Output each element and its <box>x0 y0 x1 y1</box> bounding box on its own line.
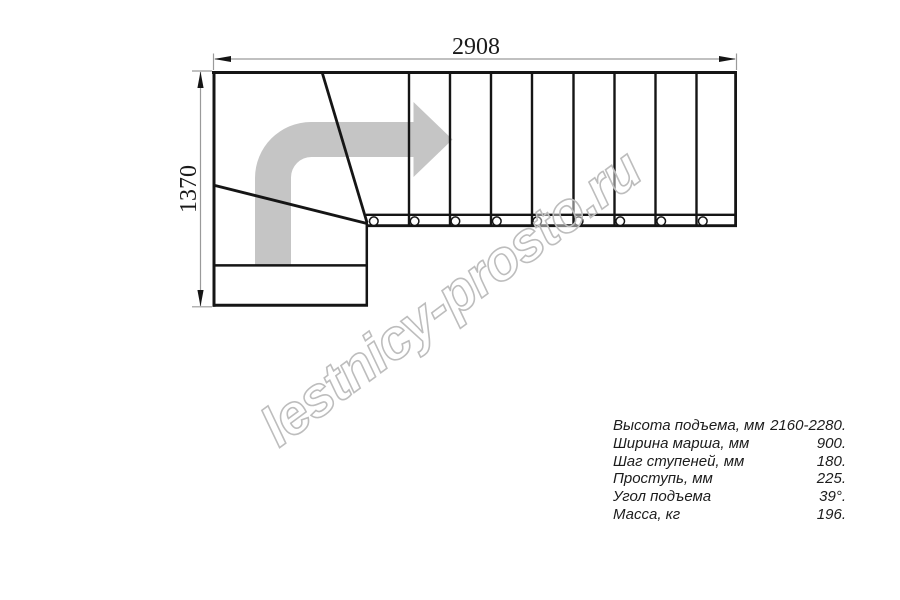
spec-row-rise-height: Высота подъема, мм 2160-2280. <box>613 417 846 435</box>
width-dimension: 2908 <box>214 34 737 70</box>
spec-row-flight-width: Ширина марша, мм 900. <box>613 435 846 453</box>
dimension-arrow-left-icon <box>214 56 231 62</box>
dimension-arrow-top-icon <box>197 72 203 89</box>
spec-label: Высота подъема, мм <box>613 417 765 435</box>
spec-label: Масса, кг <box>613 506 680 524</box>
stair-plan-page: 2908 1370 lestnicy-prosto.ru Высота подъ… <box>0 0 900 600</box>
spec-value: 39°. <box>819 488 846 506</box>
spec-table: Высота подъема, мм 2160-2280. Ширина мар… <box>613 417 846 524</box>
spec-value: 900. <box>817 435 846 453</box>
spec-value: 2160-2280. <box>770 417 846 435</box>
spec-row-mass: Масса, кг 196. <box>613 506 846 524</box>
spec-label: Ширина марша, мм <box>613 435 749 453</box>
spec-value: 225. <box>817 470 846 488</box>
spec-label: Шаг ступеней, мм <box>613 453 744 471</box>
spec-row-step-pitch: Шаг ступеней, мм 180. <box>613 453 846 471</box>
spec-value: 180. <box>817 453 846 471</box>
spec-value: 196. <box>817 506 846 524</box>
dimension-arrow-right-icon <box>719 56 736 62</box>
height-dimension: 1370 <box>176 71 212 307</box>
spec-label: Угол подъема <box>613 488 711 506</box>
direction-arrow-icon <box>255 102 453 266</box>
spec-row-tread: Проступь, мм 225. <box>613 470 846 488</box>
spec-label: Проступь, мм <box>613 470 713 488</box>
width-dimension-label: 2908 <box>452 34 500 60</box>
height-dimension-label: 1370 <box>176 165 202 213</box>
spec-row-rise-angle: Угол подъема 39°. <box>613 488 846 506</box>
dimension-arrow-bottom-icon <box>197 290 203 307</box>
